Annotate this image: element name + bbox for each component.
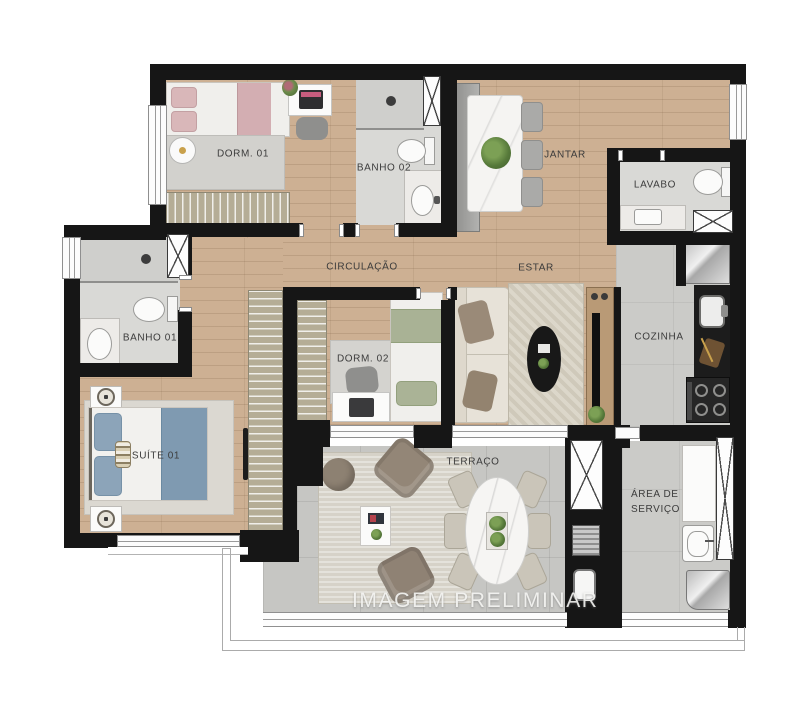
planter-plant (490, 532, 505, 547)
lavabo-sink (634, 209, 662, 225)
dorm01-pillow (171, 111, 197, 132)
floor-terraco-ext (263, 560, 303, 614)
dorm01-blanket (237, 83, 271, 136)
jantar-chair (521, 177, 543, 207)
estar-coffee-table (527, 326, 561, 392)
terraco-dining-chair (527, 513, 551, 549)
slab-outline-h2 (230, 640, 744, 641)
stove-burner (695, 384, 708, 397)
servico-tanque (682, 525, 714, 562)
tanque-faucet (705, 540, 714, 542)
table-book (368, 513, 384, 524)
lavabo-toilet-bowl (693, 169, 723, 195)
wall-terraco-top-a (283, 420, 330, 447)
floor-plan: DORM. 01 BANHO 02 JANTAR LAVABO CIRCULAÇ… (0, 0, 800, 720)
dorm01-wardrobe (166, 192, 290, 224)
dorm01-lamp (179, 147, 186, 154)
coffee-table-plant (538, 358, 549, 369)
jantar-centerpiece-plant (481, 137, 511, 169)
jantar-chair (521, 102, 543, 132)
room-label-dorm01: DORM. 01 (217, 149, 269, 160)
console-speaker-icon (591, 293, 598, 300)
room-label-banho02: BANHO 02 (357, 163, 411, 174)
dorm02-bed (390, 292, 443, 422)
sofa-throw (461, 369, 498, 412)
sofa-seat-divider (467, 354, 511, 355)
shaft-banho01 (167, 234, 189, 278)
room-label-cozinha: COZINHA (634, 332, 683, 343)
suite-wardrobe (248, 290, 283, 533)
room-label-estar: ESTAR (518, 263, 554, 274)
glass-door-dorm02-terraco (330, 425, 414, 438)
door-jamb (446, 288, 451, 299)
door-jamb (179, 275, 192, 280)
slab-outline-v3 (744, 627, 745, 651)
banho01-sink (87, 328, 112, 360)
cozinha-stove (686, 377, 730, 423)
cozinha-faucet (721, 305, 728, 317)
terraco-planter (486, 512, 508, 550)
dorm01-laptop-screen (301, 92, 321, 97)
suite-wardrobe-handle (243, 428, 248, 480)
wall-kitchen-divider (614, 287, 621, 427)
room-label-lavabo: LAVABO (634, 180, 676, 191)
suite-accent-pillow (115, 441, 131, 468)
wall-suite-dorm02-divider (283, 287, 297, 535)
room-label-terraco: TERRAÇO (446, 457, 499, 468)
console-speaker-icon (601, 293, 608, 300)
window-dorm01 (148, 105, 167, 205)
door-jamb (299, 224, 304, 237)
door-cozinha-servico (615, 427, 640, 439)
dorm01-chair (296, 117, 328, 140)
window-servico-bottom (622, 612, 728, 627)
room-label-dorm02: DORM. 02 (337, 354, 389, 365)
slab-outline-conn (222, 548, 231, 549)
banho02-shower-head (386, 96, 396, 106)
coffee-table-decor (538, 344, 550, 353)
terraco-coffee-table (360, 506, 391, 546)
dorm02-pillow (396, 381, 437, 406)
wall-servico-bottom-post (728, 610, 746, 628)
shaft-lavabo (693, 210, 733, 233)
table-plant (371, 529, 382, 540)
banho01-shower (80, 237, 178, 283)
window-suite (117, 535, 240, 547)
slab-outline-h1 (222, 650, 745, 651)
window-top-right (729, 84, 747, 140)
dorm02-desk (332, 392, 390, 422)
dorm02-laptop (349, 398, 374, 417)
jantar-chair (521, 140, 543, 170)
suite-headboard (89, 408, 92, 500)
stove-burner (695, 403, 708, 416)
stove-panel (687, 382, 692, 420)
dorm01-bed (166, 82, 290, 137)
shaft-terraco (570, 440, 603, 510)
dorm01-laptop (299, 90, 323, 109)
planter-plant (489, 516, 506, 531)
cozinha-counter (694, 285, 730, 377)
banho02-toilet-bowl (397, 139, 426, 163)
wall-lavabo-top (607, 148, 733, 162)
dorm01-pillow (171, 87, 197, 108)
suite-lamp-icon (97, 510, 115, 528)
door-jamb (618, 150, 623, 161)
wall-dorm02-top-a (283, 287, 420, 300)
tv-panel (592, 313, 600, 419)
wall-dorm02-right (441, 300, 455, 425)
wall-fridge-nook (676, 234, 686, 286)
window-banho01 (62, 237, 81, 279)
dorm02-wardrobe (297, 300, 327, 423)
slab-outline-v1 (222, 548, 223, 651)
wall-servico-left (610, 441, 622, 628)
terraco-pouf (322, 458, 355, 491)
estar-plant (588, 406, 605, 423)
door-jamb (355, 224, 360, 237)
door-jamb (339, 224, 344, 237)
shaft-servico (716, 437, 734, 560)
banho02-sink (411, 185, 434, 216)
wall-banho01-bottom (78, 363, 192, 377)
room-label-area-servico: ÁREA DE SERVIÇO (631, 487, 689, 517)
slab-outline-v4 (737, 627, 738, 641)
dorm01-side-table (169, 137, 196, 164)
servico-washer (686, 570, 730, 610)
slab-outline-v2 (230, 548, 231, 641)
stove-burner (713, 384, 726, 397)
dorm02-blanket (391, 309, 442, 343)
tanque-basin (687, 531, 709, 557)
glass-door-estar-terraco (452, 425, 568, 438)
wall-terraco-top-b (414, 425, 452, 448)
terraco-railing (263, 612, 567, 627)
door-jamb (660, 150, 665, 161)
banho01-toilet-bowl (133, 297, 165, 322)
suite-lamp-icon (97, 388, 115, 406)
door-jamb (416, 288, 421, 299)
stove-burner (713, 403, 726, 416)
banho01-toilet-tank (167, 296, 178, 322)
wall-terraco-step-chunk (295, 446, 323, 486)
estar-sofa (452, 287, 510, 423)
banho02-faucet (434, 196, 440, 204)
room-label-banho01: BANHO 01 (123, 333, 177, 344)
banho01-shower-head (141, 254, 151, 264)
room-label-suite01: SUÍTE 01 (132, 451, 180, 462)
door-jamb (394, 224, 399, 237)
room-label-jantar: JANTAR (544, 150, 586, 161)
door-jamb (179, 307, 192, 312)
dorm01-plant (282, 79, 298, 96)
shaft-banho02 (423, 76, 441, 126)
bbq-grill (572, 525, 600, 556)
wall-banho02-right (441, 64, 457, 237)
room-label-circulacao: CIRCULAÇÃO (326, 262, 398, 273)
wall-lavabo-bottom (607, 231, 733, 245)
watermark-text: IMAGEM PRELIMINAR (352, 589, 599, 613)
wall-banho01-right-b (178, 310, 192, 365)
